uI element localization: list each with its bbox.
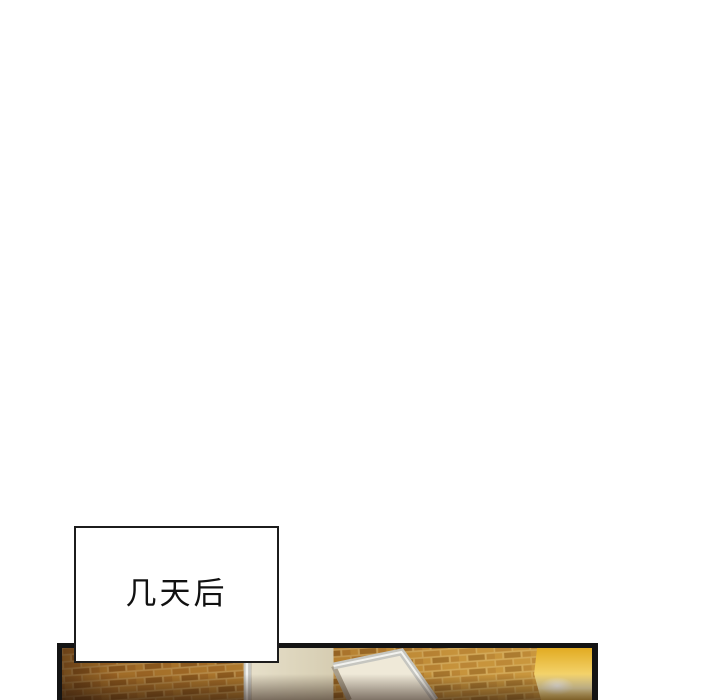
webtoon-page: 几天后 <box>0 0 720 700</box>
caption-text: 几天后 <box>126 579 228 610</box>
caption-box: 几天后 <box>74 526 279 663</box>
